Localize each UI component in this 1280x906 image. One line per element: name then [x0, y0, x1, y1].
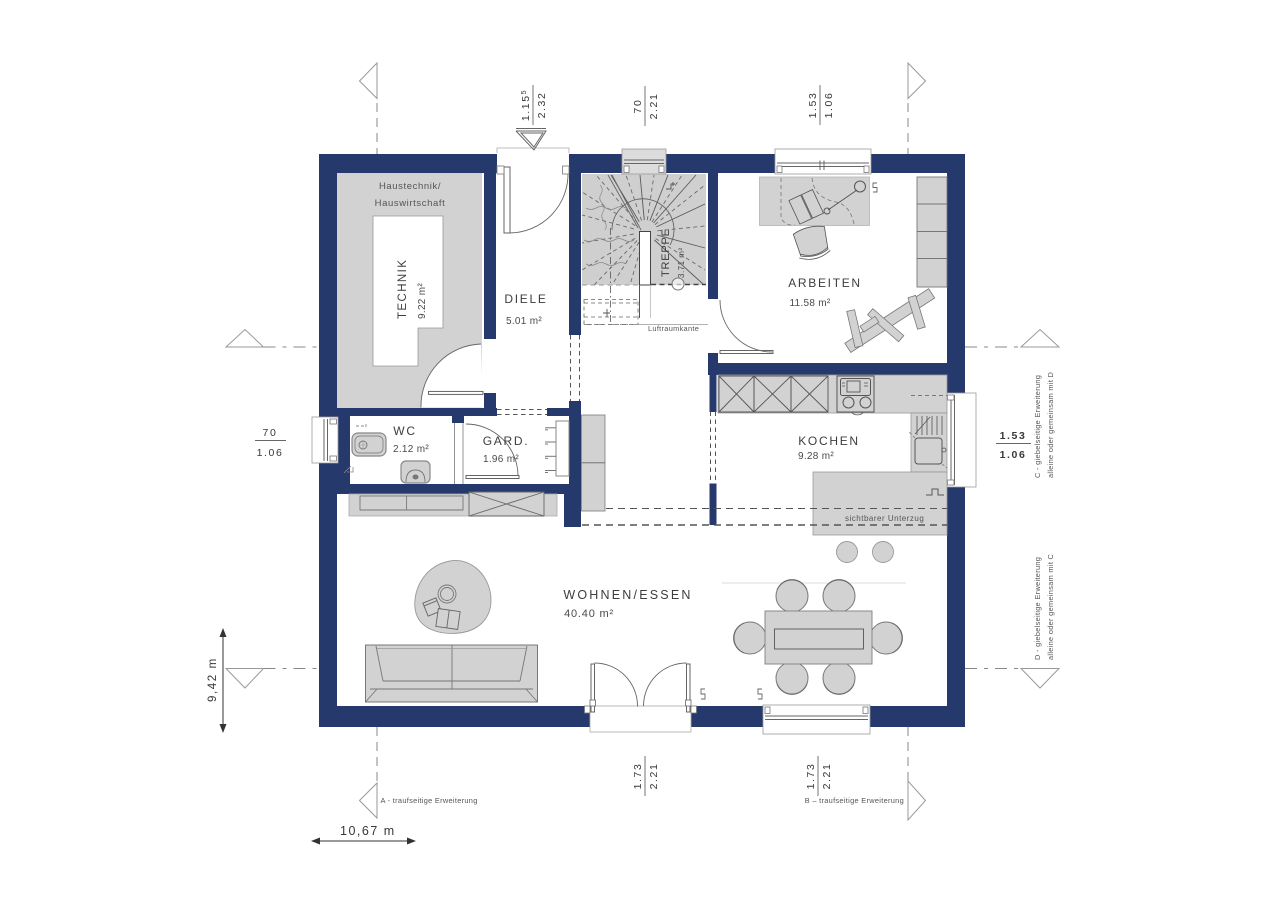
svg-text:Hauswirtschaft: Hauswirtschaft [375, 198, 446, 209]
svg-text:GARD.: GARD. [483, 434, 530, 448]
svg-text:1.73: 1.73 [632, 763, 644, 790]
svg-text:5.01 m²: 5.01 m² [506, 316, 542, 327]
svg-text:9,42 m: 9,42 m [207, 657, 219, 702]
svg-text:Haustechnik/: Haustechnik/ [379, 181, 441, 192]
svg-text:KOCHEN: KOCHEN [798, 434, 860, 448]
svg-text:sichtbarer Unterzug: sichtbarer Unterzug [845, 514, 924, 523]
svg-text:ARBEITEN: ARBEITEN [788, 276, 862, 290]
svg-text:A - traufseitige Erweiterung: A - traufseitige Erweiterung [381, 796, 478, 805]
svg-text:2.32: 2.32 [536, 92, 548, 119]
svg-text:alleine oder gemeinsam mit D: alleine oder gemeinsam mit D [1046, 372, 1055, 478]
svg-text:C - giebelseitige Erweiterung: C - giebelseitige Erweiterung [1033, 375, 1042, 478]
svg-text:WOHNEN/ESSEN: WOHNEN/ESSEN [563, 588, 692, 602]
svg-text:D - giebelseitige Erweiterung: D - giebelseitige Erweiterung [1033, 557, 1042, 660]
svg-text:DIELE: DIELE [504, 292, 547, 306]
svg-text:2.21: 2.21 [648, 93, 660, 120]
svg-text:1.96 m²: 1.96 m² [483, 454, 519, 465]
svg-text:B – traufseitige Erweiterung: B – traufseitige Erweiterung [805, 796, 904, 805]
svg-text:TECHNIK: TECHNIK [397, 259, 409, 319]
svg-text:2.21: 2.21 [648, 763, 660, 790]
svg-text:1.53: 1.53 [807, 92, 819, 119]
svg-text:WC: WC [393, 424, 416, 438]
svg-text:9.28 m²: 9.28 m² [798, 451, 834, 462]
svg-text:1.06: 1.06 [257, 447, 284, 459]
svg-text:Luftraumkante: Luftraumkante [648, 324, 699, 333]
svg-text:1.06: 1.06 [1000, 449, 1027, 461]
svg-text:9.22 m²: 9.22 m² [417, 283, 428, 319]
svg-text:2.21: 2.21 [821, 763, 833, 790]
svg-text:1.06: 1.06 [823, 92, 835, 119]
svg-text:40.40 m²: 40.40 m² [564, 608, 614, 620]
svg-text:TREPPE: TREPPE [660, 228, 672, 277]
svg-text:10,67 m: 10,67 m [340, 824, 396, 838]
svg-text:70: 70 [632, 99, 644, 114]
svg-text:1.53: 1.53 [1000, 430, 1027, 442]
svg-text:11.58 m²: 11.58 m² [789, 298, 830, 309]
svg-text:70: 70 [263, 427, 278, 439]
svg-text:1.73: 1.73 [805, 763, 817, 790]
svg-text:alleine oder gemeinsam mit C: alleine oder gemeinsam mit C [1046, 553, 1055, 660]
svg-text:3.71 m²: 3.71 m² [677, 247, 686, 278]
svg-text:2.12 m²: 2.12 m² [393, 444, 429, 455]
